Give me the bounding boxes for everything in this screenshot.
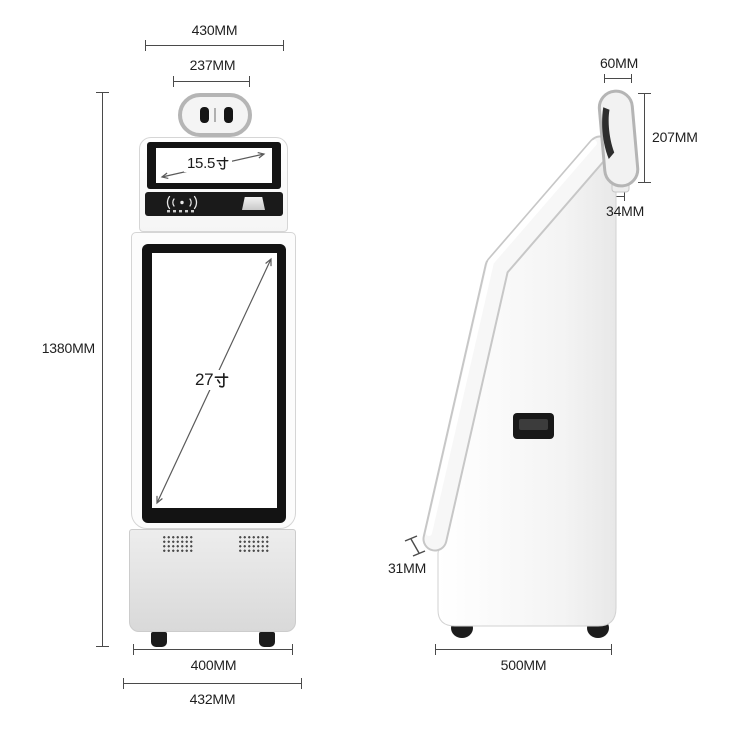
dim-line-base-width	[123, 683, 302, 684]
vent-grille-left	[162, 535, 193, 553]
dim-label-feet-width: 400MM	[173, 657, 254, 673]
dim-label-height: 1380MM	[20, 340, 95, 356]
main-screen-size-label: 27	[192, 370, 232, 390]
side-body	[438, 139, 616, 626]
cun-inch-character	[216, 156, 229, 171]
front-foot-right	[259, 632, 275, 647]
dim-label-top-width: 430MM	[174, 22, 255, 38]
camera-lens-divider	[214, 108, 216, 122]
side-camera-head	[598, 90, 639, 192]
cun-inch-character	[214, 372, 229, 389]
dim-line-top-width	[145, 45, 284, 46]
side-foot-front	[451, 618, 473, 638]
dim-label-base-width: 432MM	[172, 691, 253, 707]
kiosk-dimension-diagram: 430MM 237MM 1380MM 15.5	[0, 0, 750, 750]
receipt-slot	[242, 197, 265, 210]
dim-line-camera-width	[173, 81, 250, 82]
dim-label-head-width: 60MM	[584, 55, 654, 71]
camera-lens-right-icon	[224, 107, 233, 123]
top-screen-size-label: 15.5	[184, 155, 232, 172]
dim-label-depth: 500MM	[483, 657, 564, 673]
dim-line-height	[102, 92, 103, 647]
side-screen-slab	[429, 143, 600, 539]
side-foot-back	[587, 618, 609, 638]
reader-panel	[145, 192, 283, 216]
dim-line-head-width	[604, 78, 632, 79]
side-slot-inner	[519, 419, 548, 430]
side-camera-mount	[612, 176, 629, 192]
dim-line-depth	[435, 649, 612, 650]
dim-label-screen-thickness: 31MM	[377, 560, 437, 576]
camera-module	[178, 93, 252, 137]
front-foot-left	[151, 632, 167, 647]
dim-line-head-height	[644, 93, 645, 183]
dim-label-mount-height: 34MM	[606, 203, 656, 219]
dim-line-mount-height	[614, 196, 625, 197]
top-screen-size-value: 15.5	[187, 155, 215, 172]
diagram-overlay-svg	[0, 0, 750, 750]
kiosk-base	[129, 529, 296, 632]
side-camera-lens	[600, 107, 614, 160]
main-screen-size-value: 27	[195, 370, 213, 390]
side-profile	[405, 90, 639, 638]
vent-grille-right	[238, 535, 269, 553]
dim-label-head-height: 207MM	[652, 129, 712, 145]
camera-lens-left-icon	[200, 107, 209, 123]
dim-line-screen-thickness	[405, 536, 425, 556]
dim-line-feet-width	[133, 649, 293, 650]
dim-label-camera-width: 237MM	[172, 57, 253, 73]
nfc-contactless-icon	[159, 195, 205, 213]
side-slot	[513, 413, 554, 439]
